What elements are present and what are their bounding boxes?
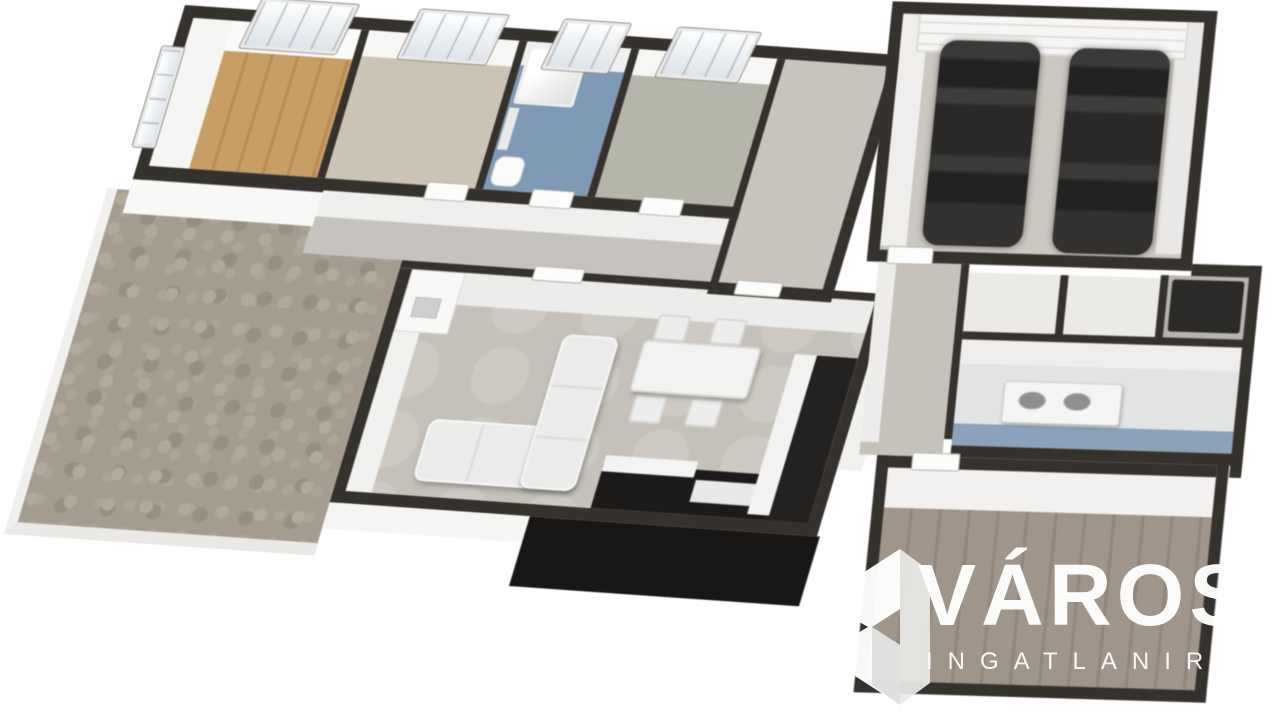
storage-appliance xyxy=(1167,279,1244,333)
dining-table xyxy=(629,339,763,399)
bathroom1-door xyxy=(528,189,575,210)
kitchen-appliance-front xyxy=(689,480,756,506)
closet1-floor xyxy=(963,272,1061,334)
car xyxy=(921,40,1042,248)
car xyxy=(1051,48,1172,256)
floor-plan-3d-rendering: VÁROS INGATLANIRO xyxy=(0,0,1280,719)
garage-corridor-door xyxy=(886,246,934,265)
bedroom3-door xyxy=(638,196,685,217)
bedroom2-door xyxy=(423,181,470,202)
bedroom4-door xyxy=(911,452,961,471)
closet2-floor xyxy=(1063,275,1161,337)
vestibule-door xyxy=(733,280,784,298)
